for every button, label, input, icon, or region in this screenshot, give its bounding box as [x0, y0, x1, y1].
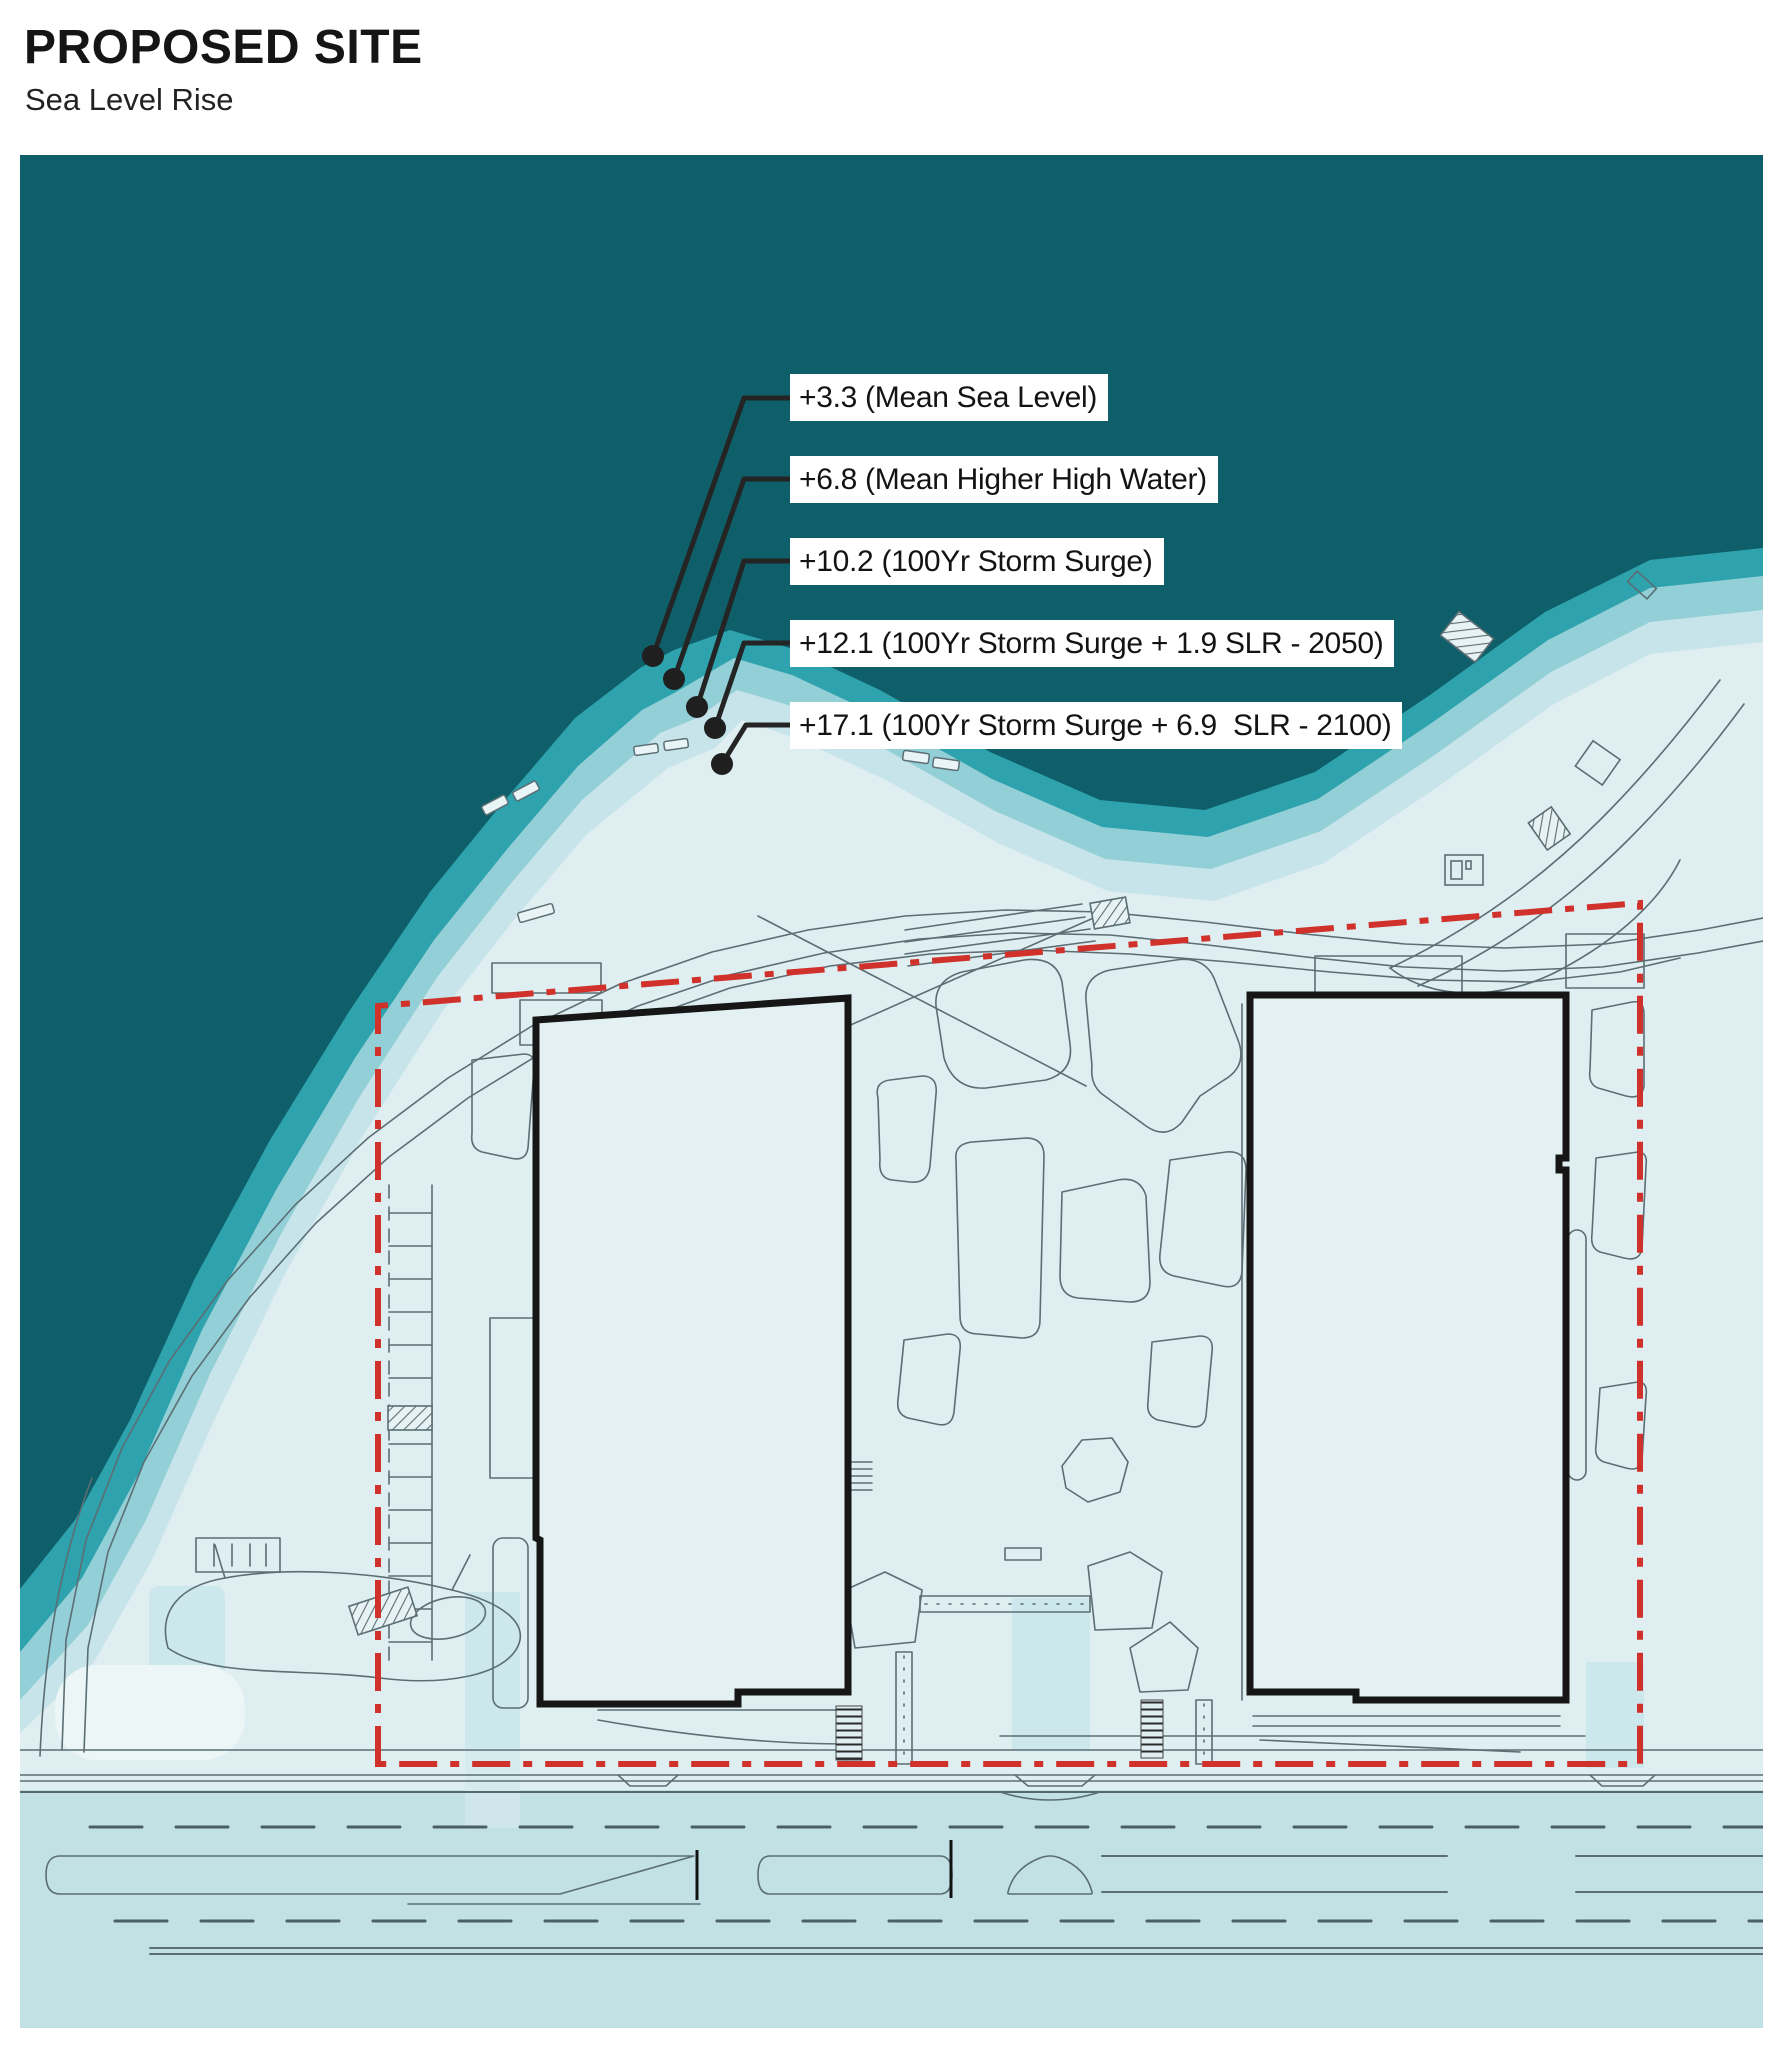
- annotation-label-100yr-storm-surge: +10.2 (100Yr Storm Surge): [790, 538, 1164, 585]
- annotation-dot: [686, 696, 708, 718]
- annotation-dot: [704, 717, 726, 739]
- annotation-label-storm-surge-2100: +17.1 (100Yr Storm Surge + 6.9 SLR - 210…: [790, 702, 1402, 749]
- annotation-dot: [663, 668, 685, 690]
- annotation-label-mean-sea-level: +3.3 (Mean Sea Level): [790, 374, 1108, 421]
- annotation-label-mean-higher-high-water: +6.8 (Mean Higher High Water): [790, 456, 1218, 503]
- building-east-footprint: [1250, 995, 1566, 1700]
- page-subtitle: Sea Level Rise: [25, 82, 234, 118]
- annotation-dot: [642, 645, 664, 667]
- annotation-dot: [711, 753, 733, 775]
- building-west-footprint: [536, 998, 848, 1704]
- annotation-label-storm-surge-2050: +12.1 (100Yr Storm Surge + 1.9 SLR - 205…: [790, 620, 1394, 667]
- page-title: PROPOSED SITE: [24, 20, 423, 75]
- site-plan-map: [0, 0, 1780, 2048]
